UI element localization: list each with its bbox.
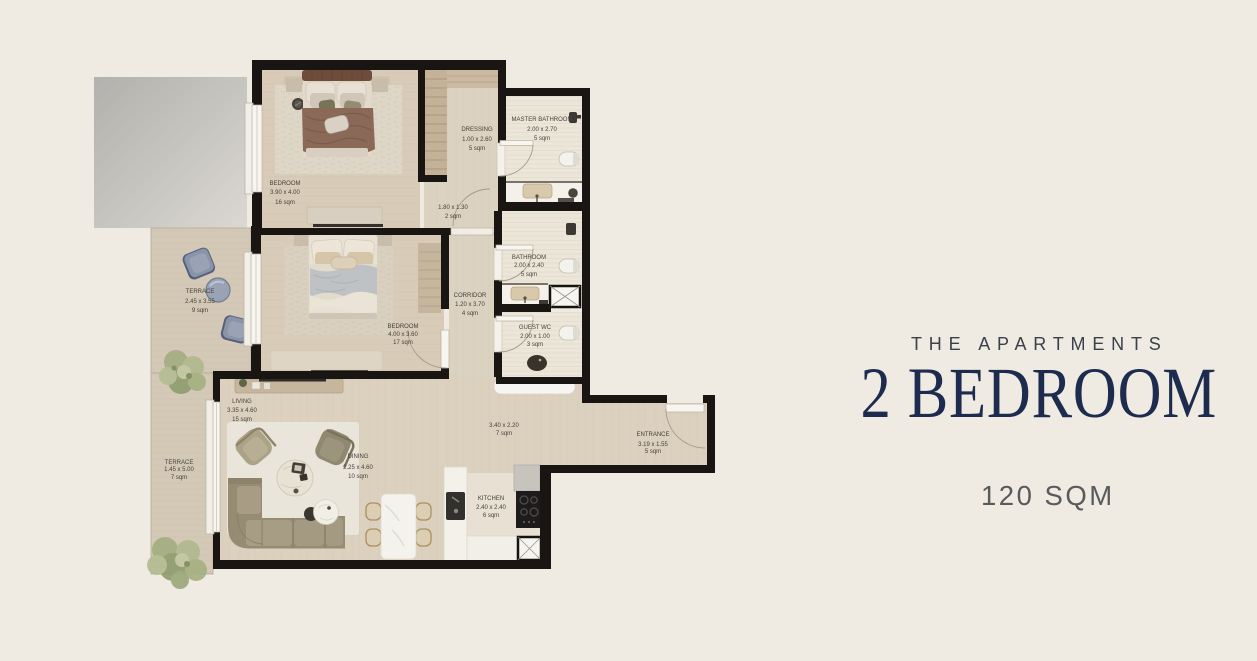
svg-text:2.00 x 2.70: 2.00 x 2.70: [527, 127, 557, 133]
svg-text:GUEST WC: GUEST WC: [519, 325, 552, 331]
svg-text:7 sqm: 7 sqm: [496, 431, 512, 437]
svg-text:4.00 x 3.60: 4.00 x 3.60: [388, 332, 418, 338]
svg-text:ENTRANCE: ENTRANCE: [636, 432, 669, 438]
svg-text:3 sqm: 3 sqm: [527, 342, 543, 348]
svg-text:1.80 x 1.30: 1.80 x 1.30: [438, 205, 468, 211]
svg-text:3.35 x 4.60: 3.35 x 4.60: [227, 408, 257, 414]
svg-text:CORRIDOR: CORRIDOR: [454, 293, 487, 299]
svg-text:MASTER BATHROOM: MASTER BATHROOM: [512, 117, 573, 123]
svg-text:2.00 x 1.00: 2.00 x 1.00: [520, 334, 550, 340]
svg-text:15 sqm: 15 sqm: [232, 417, 252, 423]
svg-text:1.20 x 3.70: 1.20 x 3.70: [455, 302, 485, 308]
svg-text:2.40 x 2.40: 2.40 x 2.40: [476, 505, 506, 511]
svg-text:TERRACE: TERRACE: [165, 460, 194, 466]
svg-text:2.00 x 2.40: 2.00 x 2.40: [514, 263, 544, 269]
svg-text:120 SQM: 120 SQM: [981, 480, 1115, 511]
svg-text:1.00 x 2.60: 1.00 x 2.60: [462, 137, 492, 143]
svg-text:9 sqm: 9 sqm: [192, 308, 208, 314]
svg-text:2.45 x 3.55: 2.45 x 3.55: [185, 299, 215, 305]
svg-text:3.40 x 2.20: 3.40 x 2.20: [489, 423, 519, 429]
svg-text:THE APARTMENTS: THE APARTMENTS: [911, 334, 1168, 354]
svg-text:TERRACE: TERRACE: [186, 289, 215, 295]
svg-text:BEDROOM: BEDROOM: [269, 181, 300, 187]
svg-text:2 BEDROOM: 2 BEDROOM: [861, 354, 1218, 433]
svg-text:DRESSING: DRESSING: [461, 127, 493, 133]
svg-text:2 sqm: 2 sqm: [445, 214, 461, 220]
svg-text:BEDROOM: BEDROOM: [387, 324, 418, 330]
svg-text:DINING: DINING: [348, 454, 369, 460]
svg-text:5 sqm: 5 sqm: [521, 272, 537, 278]
svg-text:5 sqm: 5 sqm: [534, 136, 550, 142]
svg-text:17 sqm: 17 sqm: [393, 340, 413, 346]
svg-text:1.45 x 5.00: 1.45 x 5.00: [164, 467, 194, 473]
svg-text:LIVING: LIVING: [232, 399, 252, 405]
svg-text:6 sqm: 6 sqm: [483, 513, 499, 519]
svg-text:10 sqm: 10 sqm: [348, 474, 368, 480]
svg-text:3.19 x 1.55: 3.19 x 1.55: [638, 442, 668, 448]
svg-text:5 sqm: 5 sqm: [469, 146, 485, 152]
svg-text:2.25 x 4.60: 2.25 x 4.60: [343, 465, 373, 471]
svg-text:BATHROOM: BATHROOM: [512, 255, 546, 261]
svg-text:3.90 x 4.00: 3.90 x 4.00: [270, 190, 300, 196]
svg-text:4 sqm: 4 sqm: [462, 311, 478, 317]
svg-text:7 sqm: 7 sqm: [171, 475, 187, 481]
svg-text:KITCHEN: KITCHEN: [478, 496, 504, 502]
svg-text:16 sqm: 16 sqm: [275, 200, 295, 206]
svg-text:5 sqm: 5 sqm: [645, 449, 661, 455]
